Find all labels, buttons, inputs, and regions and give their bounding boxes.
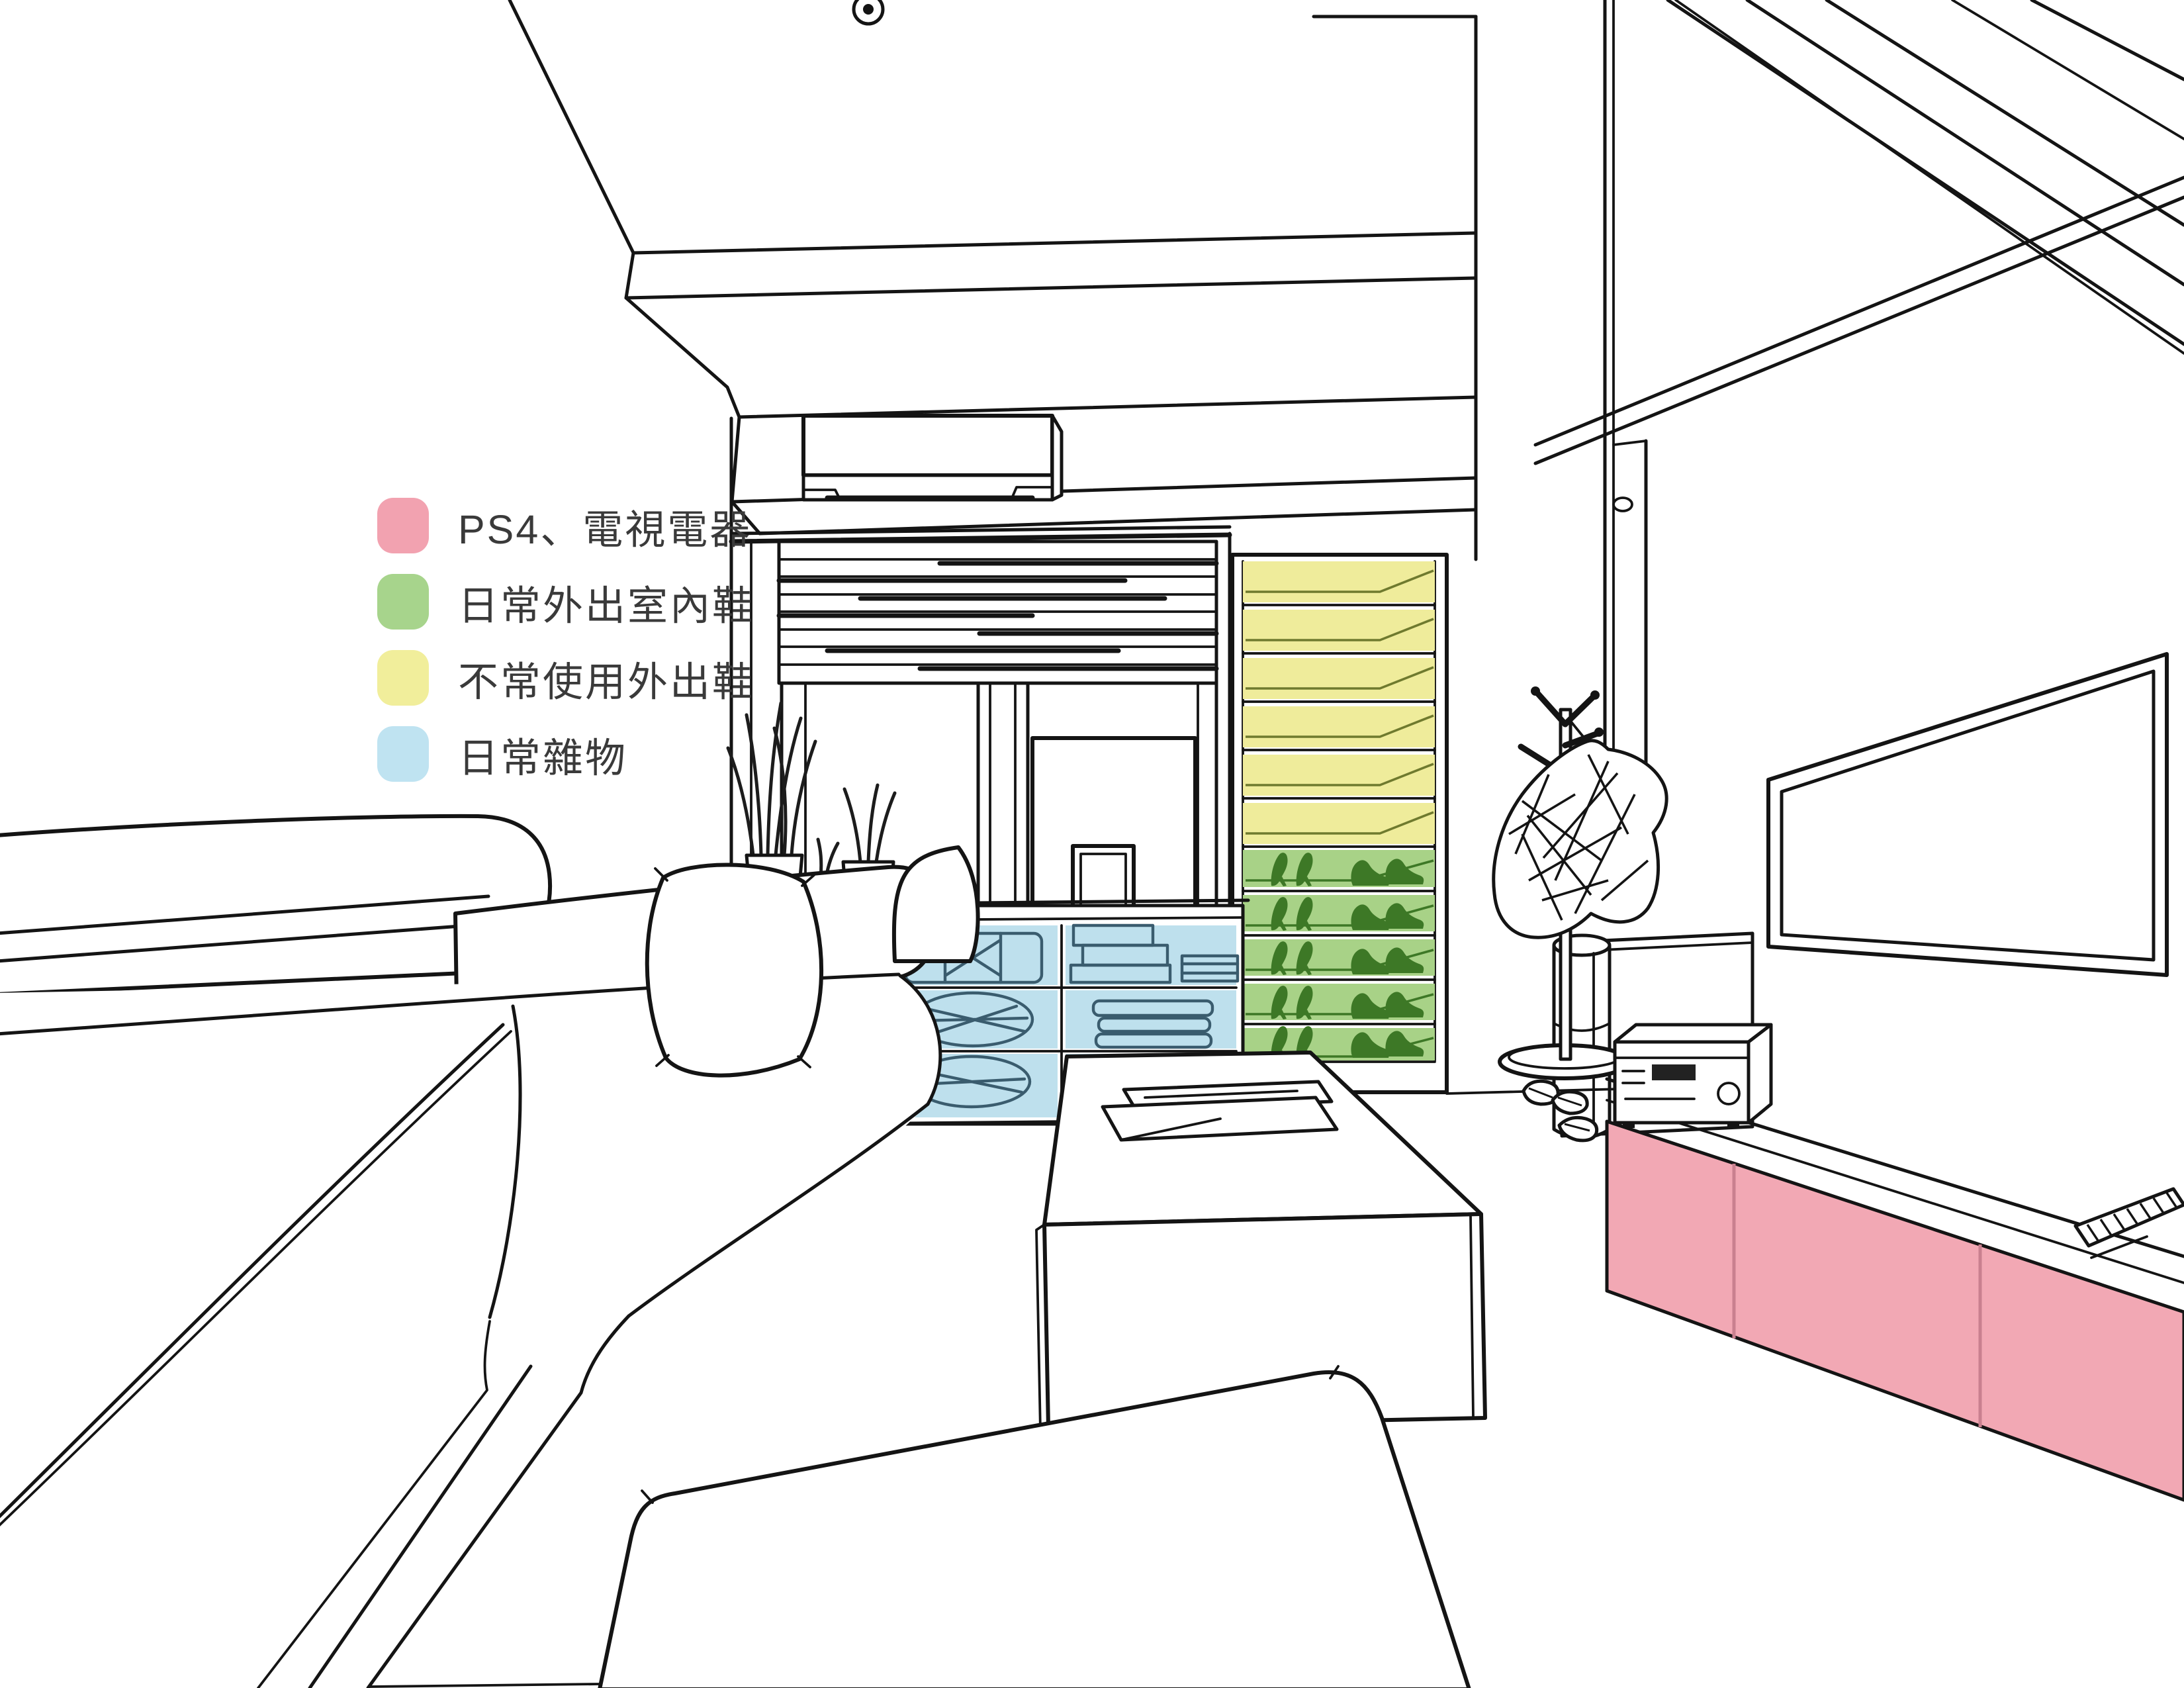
legend-label: 日常雜物 <box>458 725 627 784</box>
legend-swatch-blue <box>377 726 429 782</box>
storage-legend: PS4、電視電器 日常外出室內鞋 不常使用外出鞋 日常雜物 <box>377 498 754 782</box>
pillow-back <box>894 847 978 961</box>
legend-swatch-pink <box>377 498 429 553</box>
daily-shoes-zone <box>1243 850 1435 1062</box>
legend-item-rare-shoes: 不常使用外出鞋 <box>377 650 754 706</box>
interior-rendering: PS4、電視電器 日常外出室內鞋 不常使用外出鞋 日常雜物 <box>0 0 2184 1688</box>
legend-item-ps4-tv: PS4、電視電器 <box>377 498 754 553</box>
keyboard <box>2075 1189 2184 1258</box>
tv-console <box>1607 1025 2184 1500</box>
legend-item-sundries: 日常雜物 <box>377 726 754 782</box>
legend-label: PS4、電視電器 <box>458 496 752 555</box>
legend-label: 日常外出室內鞋 <box>458 573 754 632</box>
pillow-front <box>647 865 821 1075</box>
av-receiver <box>1615 1025 1771 1128</box>
tv <box>1768 654 2167 975</box>
legend-item-daily-shoes: 日常外出室內鞋 <box>377 574 754 630</box>
tv-console-front <box>1607 1121 2184 1500</box>
jacket <box>1494 720 1666 937</box>
armchair <box>600 1366 1469 1688</box>
roller-blind <box>779 541 1216 683</box>
shoe-cabinet <box>1232 555 1447 1092</box>
ceiling-beams <box>1668 0 2184 353</box>
legend-label: 不常使用外出鞋 <box>458 649 754 708</box>
room-line-drawing <box>0 0 2184 1688</box>
air-conditioner <box>803 416 1062 500</box>
legend-swatch-green <box>377 574 429 630</box>
papers <box>1103 1082 1337 1140</box>
ceiling-light <box>854 0 883 24</box>
legend-swatch-yellow <box>377 650 429 706</box>
coffee-table <box>1036 1053 1485 1431</box>
